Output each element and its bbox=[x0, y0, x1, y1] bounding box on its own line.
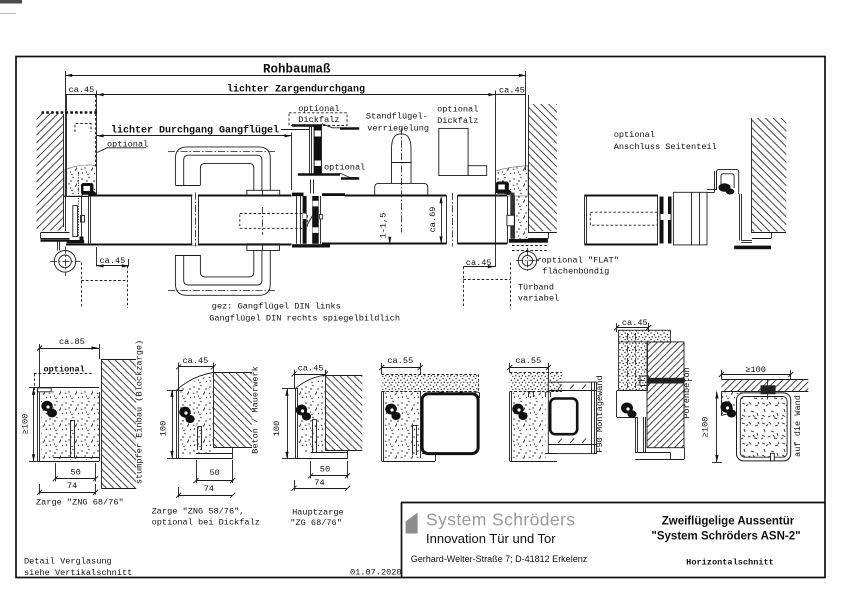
svg-text:74: 74 bbox=[67, 481, 77, 491]
svg-text:verriegelung: verriegelung bbox=[367, 124, 429, 134]
svg-text:variabel: variabel bbox=[518, 294, 559, 304]
svg-text:gez: Gangflügel DIN links: gez: Gangflügel DIN links bbox=[212, 302, 341, 312]
svg-text:Dickfalz: Dickfalz bbox=[298, 115, 339, 125]
svg-text:50: 50 bbox=[320, 465, 330, 475]
svg-text:Standflügel-: Standflügel- bbox=[366, 112, 428, 122]
svg-text:Dickfalz: Dickfalz bbox=[437, 116, 478, 126]
svg-text:"System Schröders ASN-2": "System Schröders ASN-2" bbox=[651, 531, 800, 543]
svg-text:ca.45: ca.45 bbox=[183, 356, 209, 366]
svg-text:Hauptzarge: Hauptzarge bbox=[292, 507, 344, 517]
svg-text:ca.55: ca.55 bbox=[387, 356, 413, 366]
svg-text:ca.45: ca.45 bbox=[622, 318, 648, 328]
svg-text:ca.69: ca.69 bbox=[428, 207, 438, 233]
svg-text:ca.55: ca.55 bbox=[515, 356, 541, 366]
svg-text:Türband: Türband bbox=[518, 282, 554, 292]
svg-text:Gerhard-Welter-Straße 7; D-41: Gerhard-Welter-Straße 7; D-41812 Erkelen… bbox=[411, 554, 588, 564]
svg-text:≥100: ≥100 bbox=[701, 417, 711, 438]
svg-text:Detail Verglasung: Detail Verglasung bbox=[24, 557, 112, 567]
svg-text:ca.45: ca.45 bbox=[298, 363, 324, 373]
svg-text:1-1,5: 1-1,5 bbox=[379, 213, 389, 239]
svg-text:≥100: ≥100 bbox=[21, 414, 31, 435]
svg-text:100: 100 bbox=[272, 421, 282, 436]
svg-text:50: 50 bbox=[210, 468, 220, 478]
svg-text:≥100: ≥100 bbox=[745, 365, 766, 375]
svg-text:ca.85: ca.85 bbox=[59, 337, 85, 347]
svg-text:lichter Durchgang Gangflügel: lichter Durchgang Gangflügel bbox=[111, 125, 279, 137]
svg-text:Anschluss Seitenteil: Anschluss Seitenteil bbox=[614, 142, 717, 152]
svg-text:50: 50 bbox=[71, 467, 81, 477]
svg-text:flächenbündig: flächenbündig bbox=[542, 266, 609, 276]
svg-text:siehe Vertikalschnitt: siehe Vertikalschnitt bbox=[24, 568, 132, 578]
svg-text:optional: optional bbox=[44, 364, 85, 374]
svg-text:optional bei Dickfalz: optional bei Dickfalz bbox=[152, 518, 260, 528]
svg-text:System Schröders: System Schröders bbox=[426, 510, 575, 530]
svg-text:ca.45: ca.45 bbox=[499, 86, 525, 96]
svg-text:lichter Zargendurchgang: lichter Zargendurchgang bbox=[227, 84, 365, 96]
svg-text:ca.45: ca.45 bbox=[69, 85, 95, 95]
svg-text:F90 Montagewand: F90 Montagewand bbox=[595, 375, 605, 452]
svg-text:optional "FLAT": optional "FLAT" bbox=[542, 255, 619, 265]
svg-text:Zweiflügelige Aussentür: Zweiflügelige Aussentür bbox=[662, 516, 795, 528]
svg-text:optional: optional bbox=[614, 130, 655, 140]
svg-text:Porenbeton: Porenbeton bbox=[682, 367, 692, 419]
svg-text:optional: optional bbox=[437, 105, 478, 115]
svg-text:Beton / Mauerwerk: Beton / Mauerwerk bbox=[251, 366, 261, 454]
svg-text:Innovation Tür und Tor: Innovation Tür und Tor bbox=[426, 531, 556, 546]
svg-text:auf die Wand: auf die Wand bbox=[793, 395, 803, 457]
svg-text:"ZG 68/76": "ZG 68/76" bbox=[290, 518, 342, 528]
svg-text:Gangflügel DIN rechts spiegelb: Gangflügel DIN rechts spiegelbildlich bbox=[209, 314, 400, 324]
svg-text:optional: optional bbox=[324, 163, 365, 173]
svg-text:74: 74 bbox=[314, 478, 324, 488]
svg-text:stumpfer Einbau (Blockzarge): stumpfer Einbau (Blockzarge) bbox=[135, 340, 145, 484]
svg-text:Rohbaumaß: Rohbaumaß bbox=[263, 63, 331, 77]
svg-text:Zarge "ZNG 58/76",: Zarge "ZNG 58/76", bbox=[152, 506, 245, 516]
svg-text:Horizontalschnitt: Horizontalschnitt bbox=[686, 558, 774, 568]
svg-text:Zarge "ZNG 68/76": Zarge "ZNG 68/76" bbox=[36, 497, 124, 507]
svg-text:74: 74 bbox=[204, 484, 214, 494]
svg-text:01.07.2020: 01.07.2020 bbox=[350, 568, 402, 578]
svg-text:100: 100 bbox=[159, 421, 169, 436]
